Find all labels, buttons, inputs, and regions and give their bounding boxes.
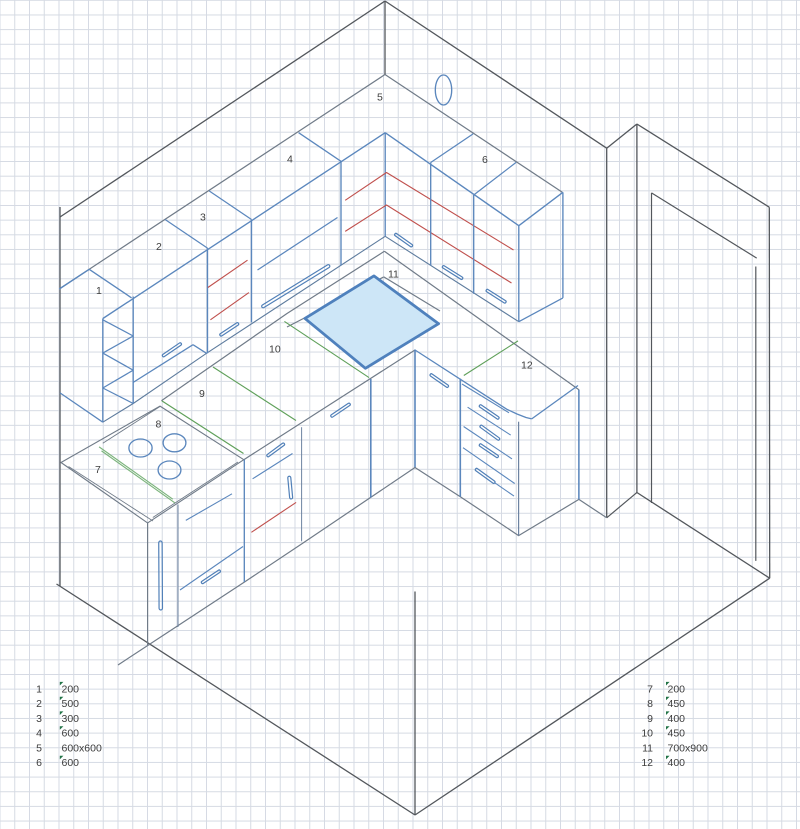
svg-text:12: 12 [521, 360, 533, 372]
svg-text:8: 8 [156, 419, 162, 431]
svg-text:9: 9 [647, 713, 653, 725]
svg-text:5: 5 [36, 742, 42, 754]
svg-text:600x600: 600x600 [62, 742, 102, 754]
svg-text:1: 1 [96, 285, 102, 297]
svg-text:700x900: 700x900 [668, 742, 708, 754]
svg-text:400: 400 [668, 713, 686, 725]
svg-text:10: 10 [641, 728, 653, 740]
svg-text:11: 11 [642, 742, 653, 754]
svg-text:2: 2 [36, 698, 42, 710]
svg-text:5: 5 [377, 92, 383, 104]
svg-text:9: 9 [199, 388, 205, 400]
svg-text:400: 400 [668, 757, 686, 769]
svg-text:1: 1 [36, 683, 42, 695]
svg-text:4: 4 [36, 728, 42, 740]
svg-text:600: 600 [62, 757, 80, 769]
svg-text:8: 8 [647, 698, 653, 710]
svg-text:7: 7 [95, 464, 101, 476]
svg-text:200: 200 [62, 683, 80, 695]
svg-text:3: 3 [36, 713, 42, 725]
svg-text:3: 3 [200, 212, 206, 224]
svg-text:4: 4 [287, 154, 293, 166]
svg-text:6: 6 [36, 757, 42, 769]
svg-text:7: 7 [647, 683, 653, 695]
svg-text:6: 6 [482, 154, 488, 166]
svg-text:450: 450 [668, 728, 686, 740]
svg-text:11: 11 [388, 269, 399, 281]
svg-text:500: 500 [62, 698, 80, 710]
svg-text:300: 300 [62, 713, 80, 725]
svg-text:2: 2 [156, 241, 162, 253]
svg-text:450: 450 [668, 698, 686, 710]
svg-text:600: 600 [62, 728, 80, 740]
svg-text:10: 10 [269, 344, 281, 356]
svg-text:200: 200 [668, 683, 686, 695]
svg-text:12: 12 [641, 757, 653, 769]
